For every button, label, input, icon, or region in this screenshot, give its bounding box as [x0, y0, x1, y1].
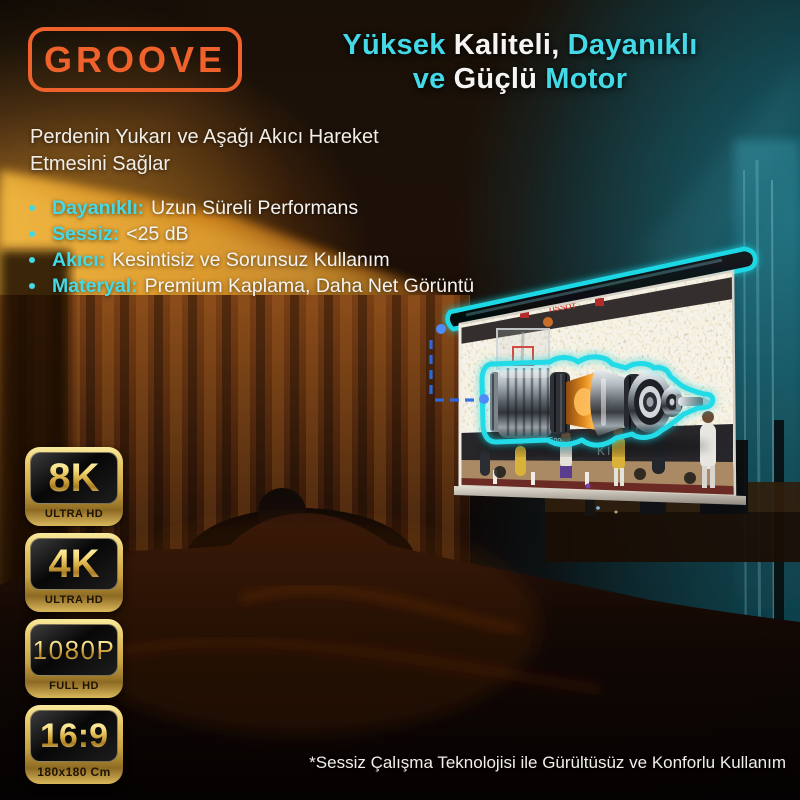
badge-8k-panel: 8K	[30, 452, 118, 504]
headline-word: Dayanıklı	[568, 29, 698, 61]
badge-ratio-panel: 16:9	[30, 710, 118, 762]
badge-1080p-value: 1080P	[33, 637, 116, 663]
device-led	[596, 506, 600, 510]
badge-ratio-value: 16:9	[40, 719, 108, 753]
feature-item: Dayanıklı: Uzun Süreli Performans	[22, 195, 474, 221]
subheadline: Perdenin Yukarı ve Aşağı Akıcı Hareket E…	[30, 124, 379, 178]
badge-ratio-label: 180x180 Cm	[30, 762, 118, 782]
bullet-dot-icon	[29, 205, 35, 211]
feature-label: Akıcı:	[52, 249, 105, 272]
brand-logo-text: GROOVE	[44, 39, 226, 81]
headline-word: Güçlü	[454, 63, 538, 95]
badge-4k-label: ULTRA HD	[30, 590, 118, 610]
feature-text: <25 dB	[126, 223, 188, 246]
feature-item: Sessiz: <25 dB	[22, 221, 474, 247]
headline-word: ve	[413, 63, 446, 95]
bullet-dot-icon	[29, 257, 35, 263]
badge-1080p-label: FULL HD	[30, 676, 118, 696]
subheadline-line-1: Perdenin Yukarı ve Aşağı Akıcı Hareket	[30, 126, 379, 148]
bullet-dot-icon	[29, 283, 35, 289]
badge-8k-label: ULTRA HD	[30, 504, 118, 524]
device-led	[615, 511, 618, 514]
badge-4k-value: 4K	[48, 544, 99, 584]
headline-word: Kaliteli,	[454, 29, 560, 61]
headline-line-1: YüksekKaliteli,Dayanıklı	[250, 28, 790, 62]
brand-logo: GROOVE	[28, 27, 242, 92]
product-poster: TISSOT KIA Google	[0, 0, 800, 800]
subheadline-line-2: Etmesini Sağlar	[30, 153, 170, 175]
headline: YüksekKaliteli,Dayanıklı veGüçlüMotor	[250, 28, 790, 96]
badge-1080p: 1080P FULL HD	[25, 619, 123, 698]
badge-8k-value: 8K	[48, 458, 99, 498]
feature-label: Dayanıklı:	[52, 197, 144, 220]
feature-list: Dayanıklı: Uzun Süreli Performans Sessiz…	[22, 195, 474, 299]
feature-label: Sessiz:	[52, 223, 119, 246]
badge-1080p-panel: 1080P	[30, 624, 118, 676]
badge-4k-panel: 4K	[30, 538, 118, 590]
headline-line-2: veGüçlüMotor	[250, 62, 790, 96]
feature-text: Uzun Süreli Performans	[151, 197, 358, 220]
footnote: *Sessiz Çalışma Teknolojisi ile Gürültüs…	[309, 753, 786, 773]
badge-4k: 4K ULTRA HD	[25, 533, 123, 612]
headline-word: Motor	[545, 63, 627, 95]
resolution-badges: 8K ULTRA HD 4K ULTRA HD 1080P FULL HD 16…	[25, 447, 123, 784]
connector-dot-icon	[479, 394, 489, 404]
feature-text: Premium Kaplama, Daha Net Görüntü	[145, 275, 474, 298]
feature-item: Akıcı: Kesintisiz ve Sorunsuz Kullanım	[22, 247, 474, 273]
feature-text: Kesintisiz ve Sorunsuz Kullanım	[112, 249, 389, 272]
badge-8k: 8K ULTRA HD	[25, 447, 123, 526]
feature-label: Materyal:	[52, 275, 138, 298]
connector-dot-icon	[436, 324, 446, 334]
headline-word: Yüksek	[342, 29, 445, 61]
badge-ratio: 16:9 180x180 Cm	[25, 705, 123, 784]
bullet-dot-icon	[29, 231, 35, 237]
feature-item: Materyal: Premium Kaplama, Daha Net Görü…	[22, 273, 474, 299]
